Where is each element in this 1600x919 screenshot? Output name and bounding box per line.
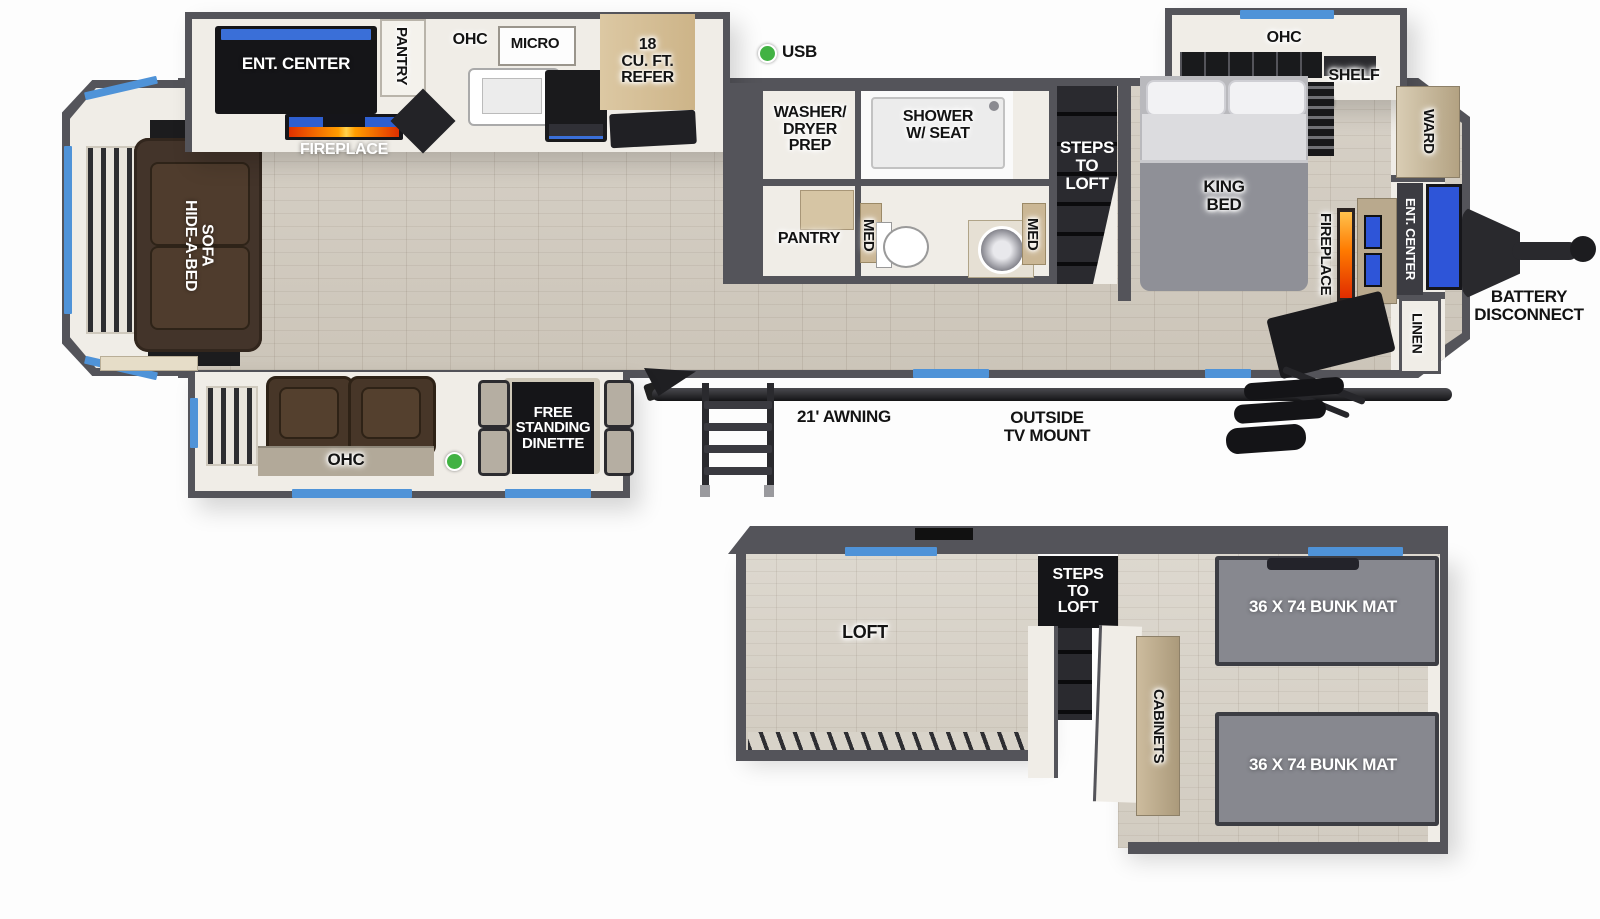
front-step-1 — [1244, 377, 1345, 401]
hitch-tongue — [1512, 242, 1578, 260]
bedroom-fireplace-flame — [1340, 212, 1352, 298]
living-fireplace — [285, 114, 403, 140]
bedroom-window — [1240, 10, 1334, 19]
loft-cabinets-label: CABINETS — [1145, 641, 1171, 811]
slide-window-left — [190, 398, 198, 448]
loft-room-floor — [736, 552, 1038, 752]
cabinet-glass-top — [1364, 215, 1382, 249]
loft-cabinets: CABINETS — [1136, 636, 1180, 816]
stair-partition-right — [1093, 625, 1142, 802]
outside-tv-label: OUTSIDE TV MOUNT — [992, 406, 1102, 448]
microwave: MICRO — [498, 26, 576, 66]
linen-label: LINEN — [1404, 303, 1430, 363]
toilet-bowl — [883, 226, 929, 268]
king-bed-sheet — [1142, 114, 1306, 162]
bunk-mat-bottom: 36 X 74 BUNK MAT — [1215, 712, 1439, 826]
stove-burners — [549, 124, 603, 139]
linen-closet: LINEN — [1399, 298, 1441, 374]
living-fireplace-label: FIREPLACE — [284, 140, 404, 160]
seat-cushion — [361, 387, 421, 439]
bunk-mat-top-label: 36 X 74 BUNK MAT — [1219, 560, 1427, 654]
step-foot-left — [700, 485, 710, 497]
stove — [545, 70, 607, 142]
loft-steps-box: STEPS TO LOFT — [1038, 556, 1118, 628]
hitch-coupler — [1570, 236, 1596, 262]
dinette-chair-4 — [604, 428, 634, 476]
bath-pantry-shelf — [800, 190, 854, 230]
rv-floorplan-diagram: HIDE-A-BED SOFA ENT. CENTER FIREPLACE PA… — [0, 0, 1600, 919]
refrigerator-label: 18 CU. FT. REFER — [600, 18, 695, 106]
loft-steps-label: STEPS TO LOFT — [1038, 556, 1118, 628]
kitchen-pantry: PANTRY — [380, 19, 426, 97]
dinette-chair-1 — [478, 380, 510, 428]
kitchen-pantry-label: PANTRY — [382, 21, 420, 91]
loft-label: LOFT — [828, 620, 902, 644]
theater-seat-left — [266, 376, 354, 456]
king-bed: KING BED — [1140, 76, 1308, 288]
king-bed-pillow-left — [1146, 80, 1226, 116]
step-rung — [704, 401, 772, 409]
theater-seat-right — [348, 376, 436, 456]
microwave-label: MICRO — [500, 28, 570, 60]
loft-window-left — [845, 547, 937, 556]
bedroom-fireplace-label: FIREPLACE — [1314, 208, 1336, 300]
entry-steps — [700, 383, 776, 495]
bedroom-fireplace-cabinet — [1357, 198, 1397, 304]
bath-right-strip — [1013, 91, 1049, 179]
bedroom-ent-center-label: ENT. CENTER — [1399, 185, 1421, 293]
front-step-3 — [1225, 423, 1307, 455]
dinette-chair-3 — [604, 380, 634, 428]
bedroom-headboard-cabinet — [1180, 52, 1322, 78]
bunkroom-right-wall — [1440, 548, 1448, 848]
kitchen-sink-basin — [482, 78, 542, 114]
loft-left-wall — [736, 552, 746, 752]
bunk-mat-top: 36 X 74 BUNK MAT — [1215, 556, 1439, 666]
bottom-window-1 — [913, 369, 989, 378]
front-door-steps — [1222, 376, 1372, 468]
loft-stairs — [1056, 624, 1092, 720]
main-steps-to-loft-label: STEPS TO LOFT — [1051, 128, 1123, 204]
roof-vent — [915, 528, 973, 540]
wardrobe-front: WARD — [1396, 86, 1460, 178]
bunk-mat-bottom-label: 36 X 74 BUNK MAT — [1219, 716, 1427, 814]
dinette-table: FREE STANDING DINETTE — [512, 382, 594, 474]
step-rung — [704, 423, 772, 431]
bedroom-shelf-unit — [1308, 82, 1334, 156]
usb-indicator-dot — [758, 44, 777, 63]
loft-railing — [748, 732, 1038, 750]
shower-label: SHOWER W/ SEAT — [868, 100, 1008, 152]
king-bed-pillow-right — [1228, 80, 1306, 116]
living-ent-center-screen — [221, 29, 371, 40]
slide-window-bottom-1 — [292, 489, 412, 498]
bath-sink — [978, 226, 1026, 274]
med-left-label: MED — [856, 208, 880, 262]
rear-wardrobe — [86, 146, 140, 334]
bedroom-ohc-label: OHC — [1252, 26, 1316, 50]
awning-label: 21' AWNING — [788, 406, 900, 428]
kitchen-base-cabinet — [609, 110, 697, 148]
cabinet-glass-bottom — [1364, 253, 1382, 287]
stair-partition-left — [1028, 626, 1058, 778]
front-step-2 — [1233, 399, 1326, 424]
slide-ohc-label: OHC — [316, 448, 376, 472]
usb-label: USB — [782, 42, 826, 62]
slide-wardrobe — [206, 386, 258, 466]
bedroom-ent-center: ENT. CENTER — [1397, 183, 1423, 295]
kitchen-ohc-label: OHC — [443, 28, 497, 52]
living-ent-center-label: ENT. CENTER — [215, 44, 377, 84]
fireplace-flame-bar — [289, 127, 399, 137]
slide-usb-dot — [445, 452, 464, 471]
wardrobe-label: WARD — [1415, 89, 1441, 173]
battery-disconnect-label: BATTERY DISCONNECT — [1458, 284, 1600, 328]
fireplace-pane-left — [289, 117, 323, 127]
king-bed-label: KING BED — [1180, 174, 1268, 218]
step-rung — [704, 445, 772, 453]
bath-pantry-label: PANTRY — [763, 226, 855, 252]
washer-dryer-label: WASHER/ DRYER PREP — [760, 95, 860, 165]
loft-bottom-wall — [736, 750, 1040, 761]
bunkroom-bottom-wall — [1128, 842, 1448, 854]
loft-window-right — [1308, 547, 1403, 556]
dinette-chair-2 — [478, 428, 510, 476]
step-foot-right — [764, 485, 774, 497]
slide-window-bottom-2 — [505, 489, 591, 498]
hide-a-bed-sofa: HIDE-A-BED SOFA — [134, 138, 262, 352]
seat-cushion — [279, 387, 339, 439]
dinette-label: FREE STANDING DINETTE — [512, 382, 594, 474]
rear-shelf — [100, 356, 198, 371]
hide-a-bed-sofa-label: HIDE-A-BED SOFA — [168, 168, 228, 323]
step-rung — [704, 467, 772, 475]
rear-window-left — [64, 146, 72, 314]
refrigerator: 18 CU. FT. REFER — [600, 14, 695, 110]
med-right-label: MED — [1020, 206, 1044, 262]
bedroom-fireplace — [1337, 208, 1355, 302]
living-ent-center: ENT. CENTER — [215, 26, 377, 114]
bedroom-tv — [1426, 184, 1462, 290]
